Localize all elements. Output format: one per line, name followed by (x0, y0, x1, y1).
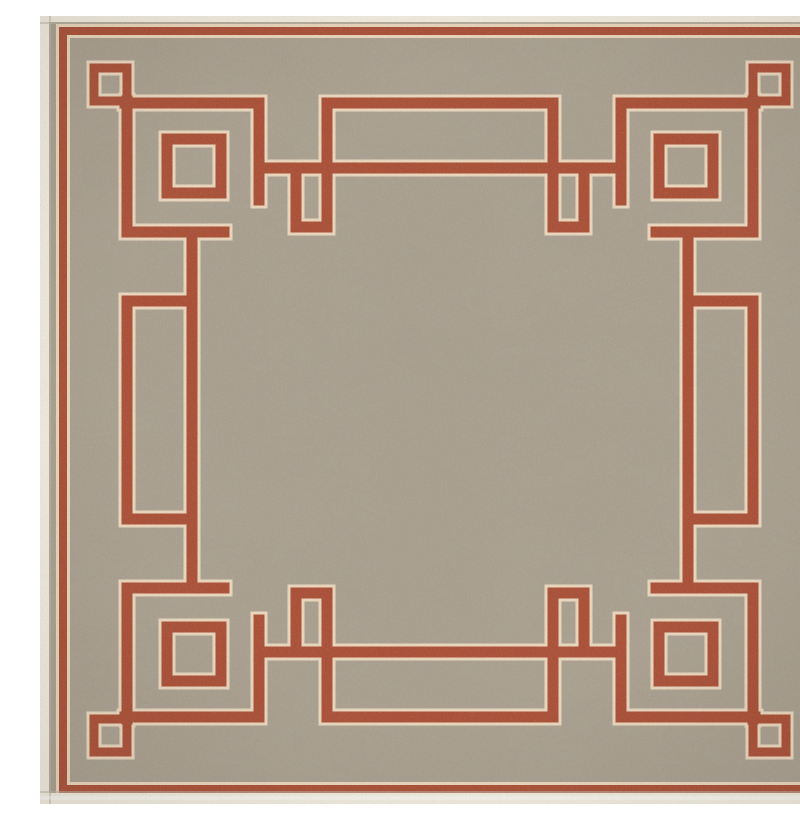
vignette (40, 16, 800, 804)
rug-photo (40, 16, 800, 804)
rug-image (40, 16, 800, 804)
